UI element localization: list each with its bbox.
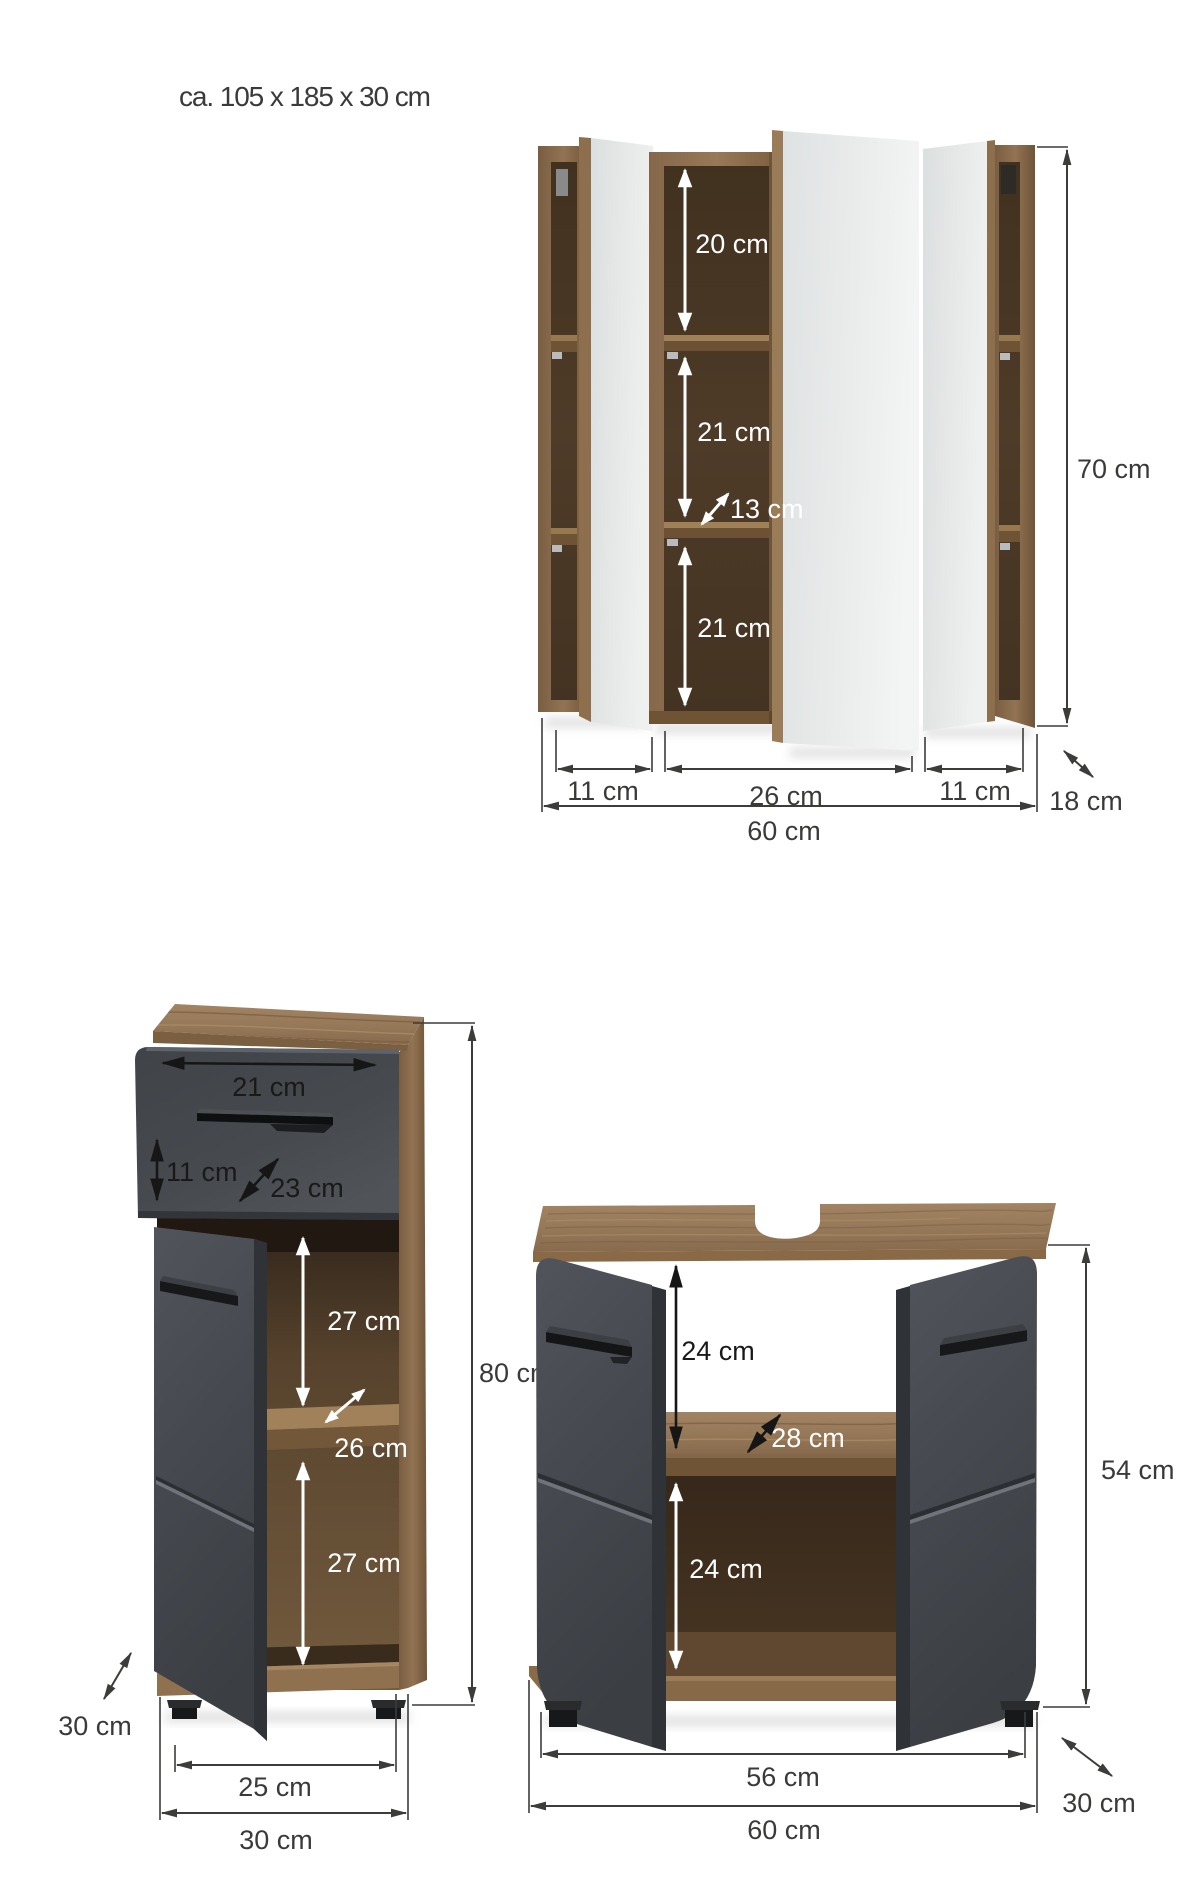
svg-text:60 cm: 60 cm	[747, 816, 821, 846]
svg-text:30 cm: 30 cm	[58, 1711, 132, 1741]
svg-text:24 cm: 24 cm	[681, 1336, 755, 1366]
svg-text:11 cm: 11 cm	[939, 776, 1011, 806]
svg-text:30 cm: 30 cm	[239, 1825, 313, 1855]
svg-text:26 cm: 26 cm	[334, 1433, 408, 1463]
svg-text:56 cm: 56 cm	[746, 1762, 820, 1792]
svg-text:27 cm: 27 cm	[327, 1306, 401, 1336]
svg-text:27 cm: 27 cm	[327, 1548, 401, 1578]
svg-text:11 cm: 11 cm	[567, 776, 639, 806]
svg-text:30 cm: 30 cm	[1062, 1788, 1136, 1818]
svg-text:23 cm: 23 cm	[270, 1173, 344, 1203]
svg-text:26 cm: 26 cm	[749, 781, 823, 811]
svg-text:54 cm: 54 cm	[1101, 1455, 1175, 1485]
svg-text:25 cm: 25 cm	[238, 1772, 312, 1802]
svg-text:21 cm: 21 cm	[697, 417, 771, 447]
svg-text:24 cm: 24 cm	[689, 1554, 763, 1584]
svg-text:70 cm: 70 cm	[1077, 454, 1151, 484]
svg-text:60 cm: 60 cm	[747, 1815, 821, 1845]
svg-text:28 cm: 28 cm	[771, 1423, 845, 1453]
svg-text:11 cm: 11 cm	[166, 1157, 238, 1187]
svg-text:21 cm: 21 cm	[232, 1072, 306, 1102]
svg-text:13 cm: 13 cm	[730, 494, 804, 524]
svg-text:ca. 105 x 185 x 30 cm: ca. 105 x 185 x 30 cm	[179, 81, 430, 112]
svg-text:21 cm: 21 cm	[697, 613, 771, 643]
svg-text:20 cm: 20 cm	[695, 229, 769, 259]
svg-text:18 cm: 18 cm	[1049, 786, 1123, 816]
